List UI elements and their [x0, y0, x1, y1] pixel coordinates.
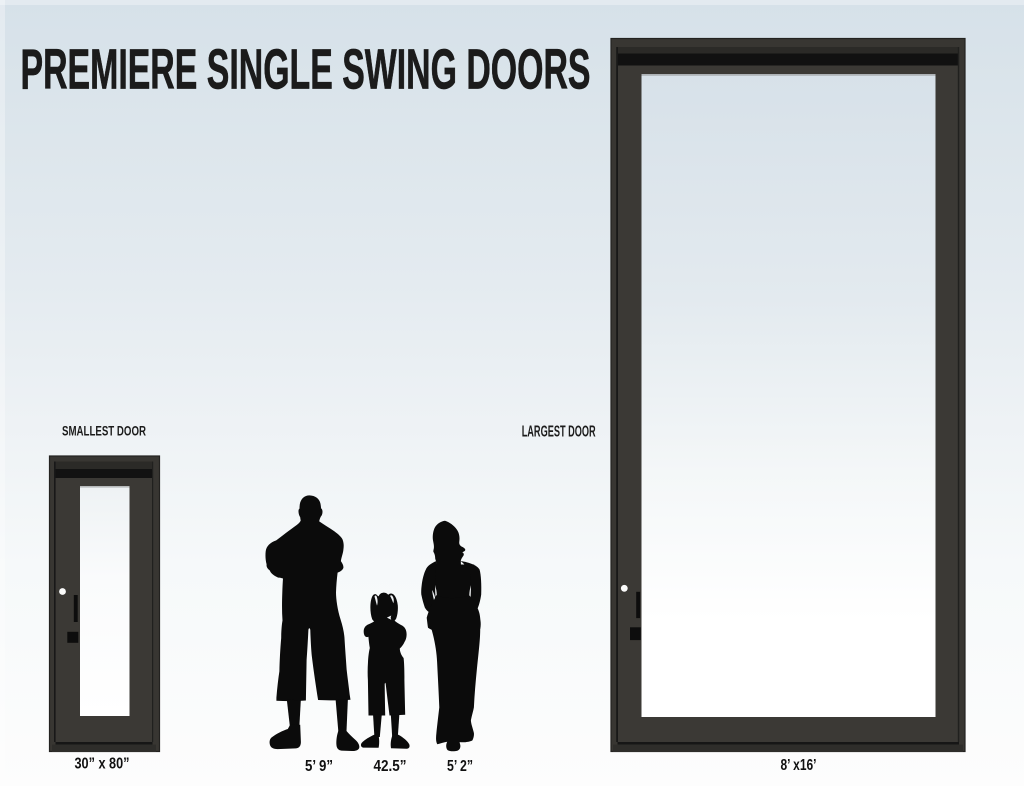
svg-text:8’ x16’: 8’ x16’: [781, 757, 817, 774]
svg-text:5’ 2”: 5’ 2”: [447, 758, 473, 775]
svg-text:5’ 9”: 5’ 9”: [305, 758, 333, 775]
svg-text:42.5”: 42.5”: [374, 758, 407, 775]
svg-text:LARGEST DOOR: LARGEST DOOR: [522, 424, 596, 441]
svg-text:30” x 80”: 30” x 80”: [75, 755, 130, 772]
svg-text:PREMIERE SINGLE SWING DOORS: PREMIERE SINGLE SWING DOORS: [21, 39, 591, 102]
svg-text:SMALLEST DOOR: SMALLEST DOOR: [62, 424, 146, 440]
